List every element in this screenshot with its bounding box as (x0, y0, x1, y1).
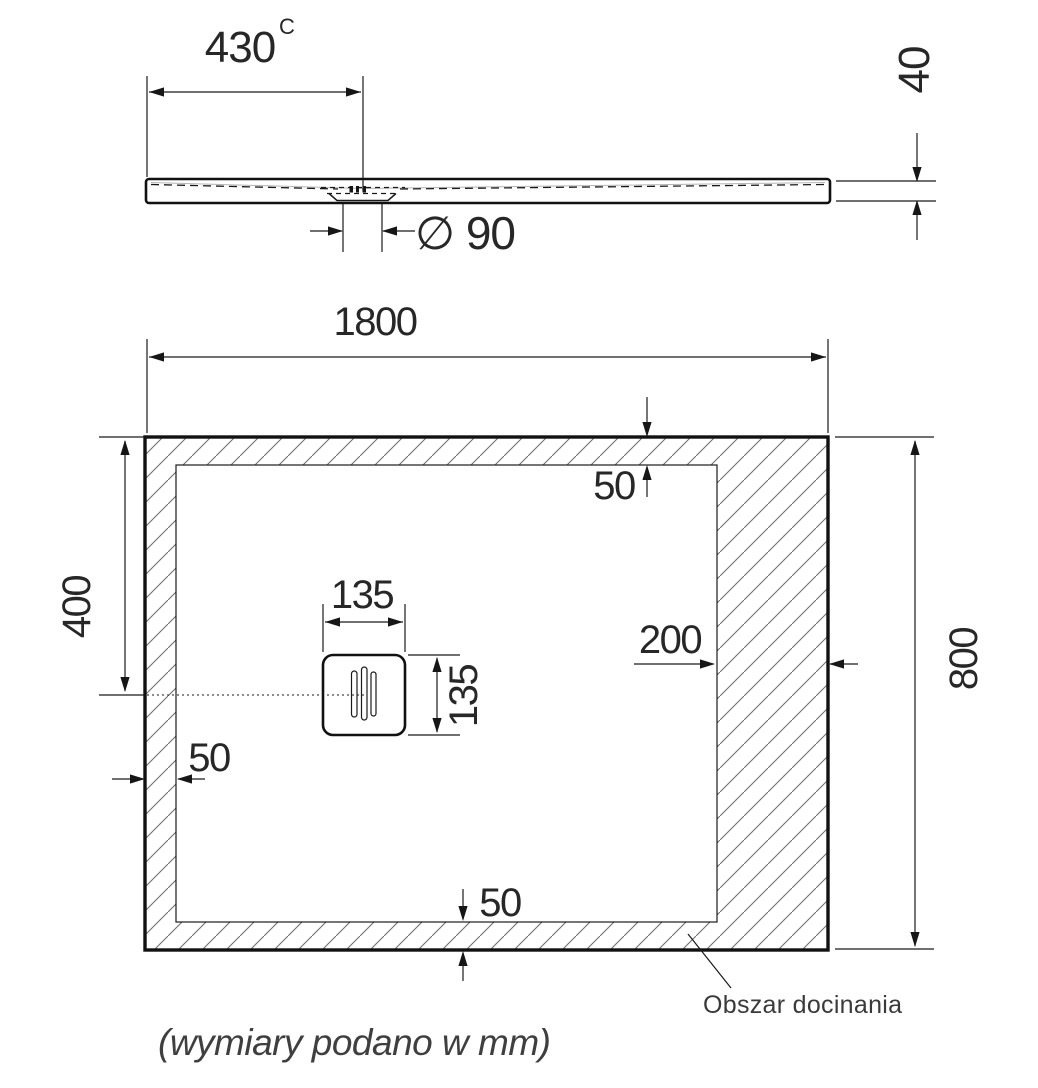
dim-diameter-label: ∅ 90 (415, 207, 515, 259)
dim-135-height: 135 (408, 655, 486, 735)
dim-430-label: 430 (205, 23, 275, 72)
dim-40: 40 (836, 47, 939, 240)
dim-50-top-label: 50 (593, 464, 635, 508)
dim-40-label: 40 (890, 47, 939, 94)
dim-diameter-90: ∅ 90 (310, 204, 515, 259)
drain-plan-detail (147, 655, 405, 735)
dim-430: 430 C (147, 14, 363, 191)
dim-1800: 1800 (147, 300, 828, 433)
dim-800-label: 800 (942, 628, 986, 690)
dim-50-bottom-label: 50 (479, 881, 521, 925)
side-view: 430 C 40 ∅ 90 (146, 14, 939, 259)
plan-view: 1800 800 400 50 (55, 300, 986, 1019)
units-note: (wymiary podano w mm) (158, 1022, 550, 1063)
dim-400: 400 (55, 437, 144, 695)
dim-800: 800 (835, 437, 986, 949)
technical-drawing-page: 430 C 40 ∅ 90 (0, 0, 1038, 1088)
trim-area-label: Obszar docinania (703, 991, 902, 1019)
tray-profile (146, 179, 830, 203)
dim-200-label: 200 (639, 618, 701, 662)
dim-135-width-label: 135 (331, 573, 393, 617)
dim-430-superscript: C (279, 14, 295, 39)
dim-135-height-label: 135 (442, 665, 486, 727)
dim-50-left-label: 50 (188, 736, 230, 780)
slope-line (151, 183, 825, 189)
trim-hatch-area (145, 437, 828, 950)
dim-1800-label: 1800 (334, 300, 417, 344)
shower-tray-drawing: 430 C 40 ∅ 90 (0, 0, 1038, 1088)
dim-400-label: 400 (55, 576, 99, 638)
dim-135-width: 135 (323, 573, 405, 652)
